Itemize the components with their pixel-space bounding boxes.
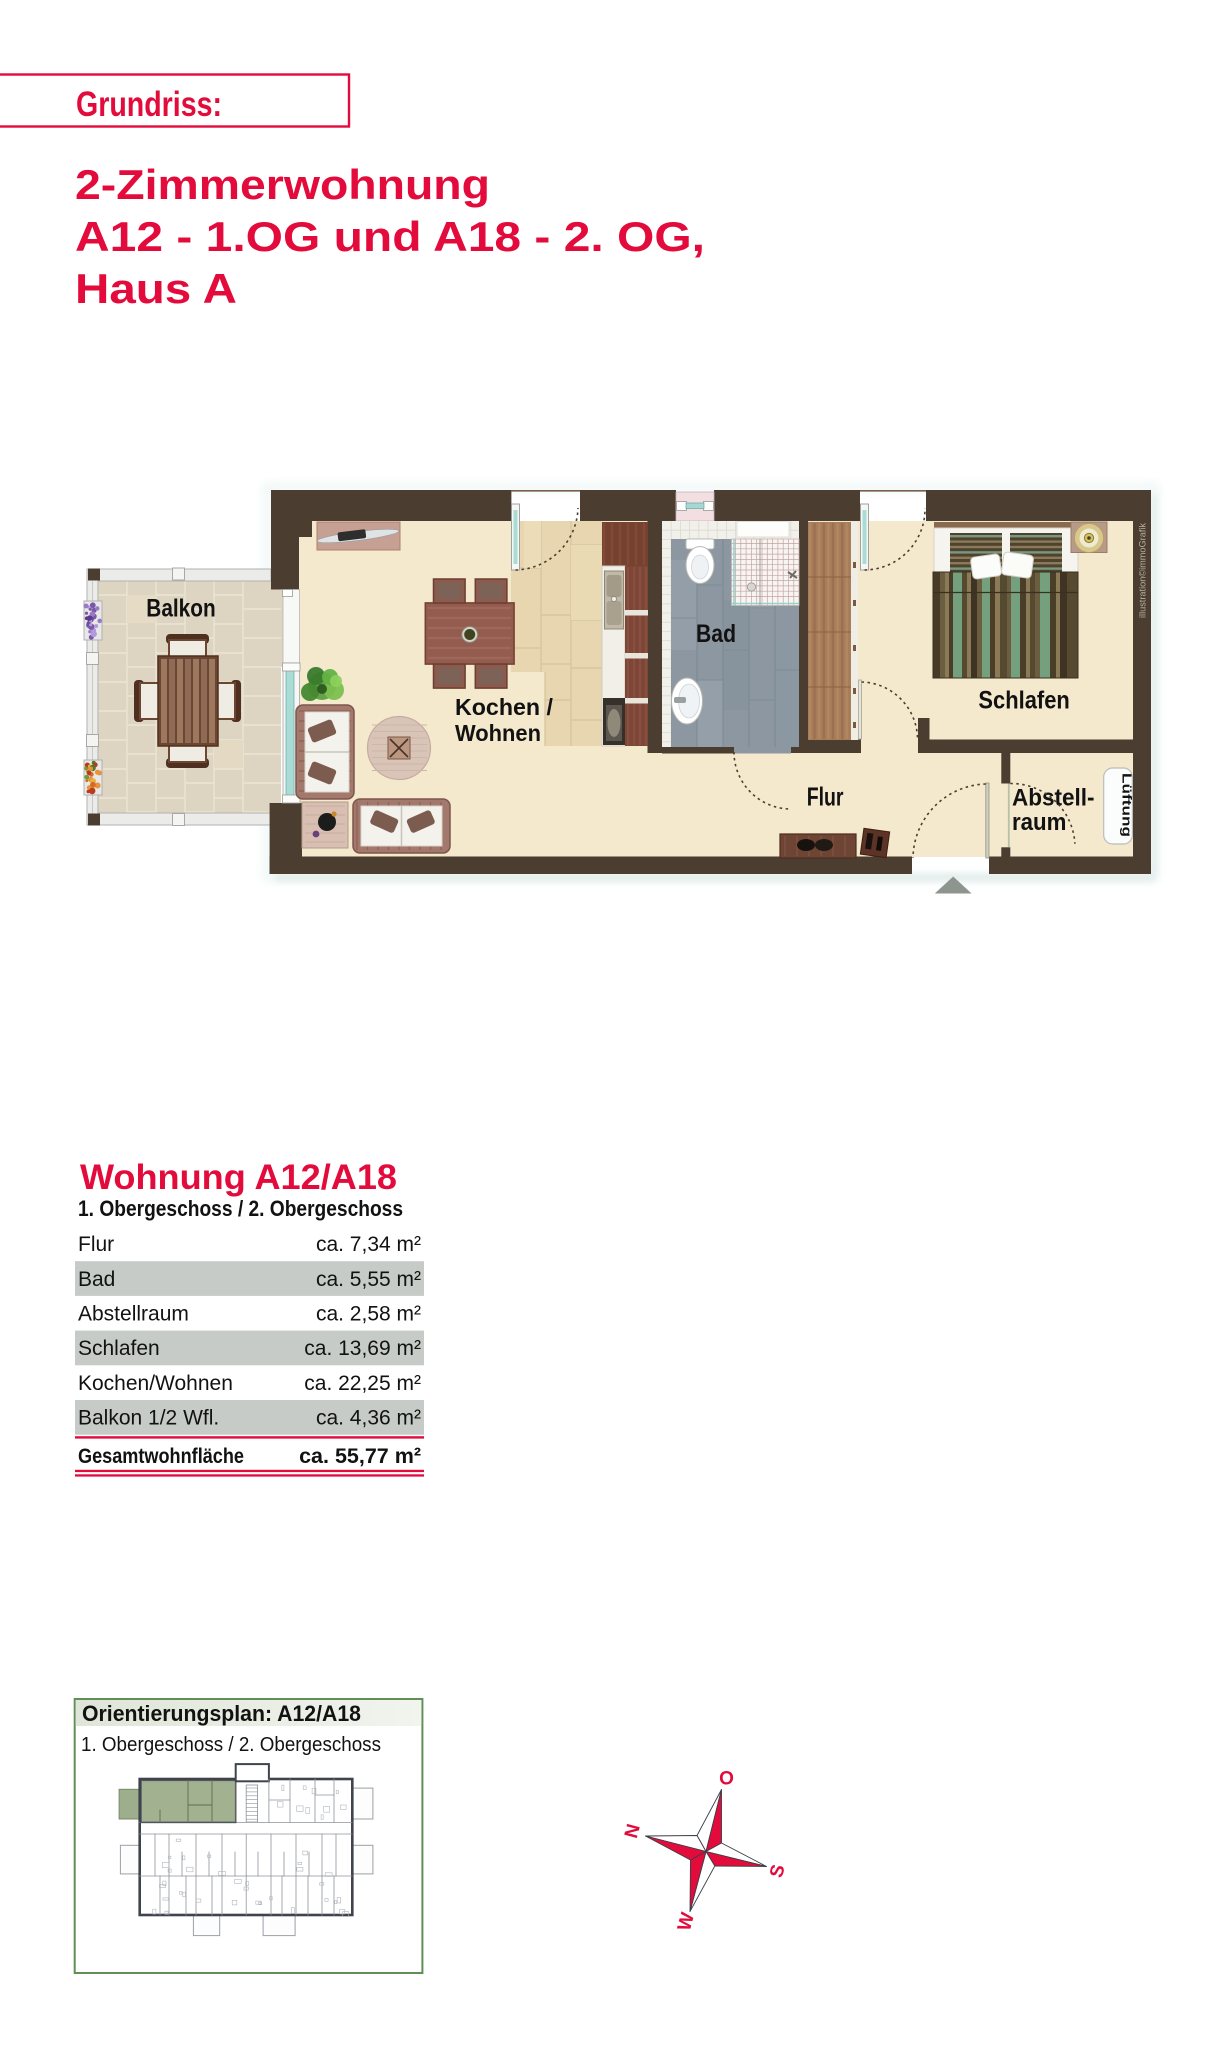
svg-text:ca. 5,55 m²: ca. 5,55 m² bbox=[316, 1268, 421, 1291]
svg-text:Wohnen: Wohnen bbox=[455, 720, 541, 746]
svg-text:Haus A: Haus A bbox=[75, 265, 237, 312]
svg-text:ca. 4,36 m²: ca. 4,36 m² bbox=[316, 1407, 421, 1430]
svg-text:O: O bbox=[719, 1769, 734, 1790]
svg-text:Flur: Flur bbox=[78, 1233, 114, 1256]
svg-text:Kochen /: Kochen / bbox=[455, 694, 554, 720]
svg-text:raum: raum bbox=[1012, 809, 1066, 836]
svg-text:Abstell-: Abstell- bbox=[1012, 785, 1095, 812]
svg-text:ca. 2,58 m²: ca. 2,58 m² bbox=[316, 1303, 421, 1326]
svg-text:A12 - 1.OG und A18 - 2. OG,: A12 - 1.OG und A18 - 2. OG, bbox=[75, 213, 705, 260]
svg-text:Flur: Flur bbox=[807, 782, 844, 812]
svg-text:illustration©immoGrafik: illustration©immoGrafik bbox=[1138, 523, 1149, 618]
svg-text:ca. 13,69 m²: ca. 13,69 m² bbox=[304, 1337, 421, 1360]
svg-text:ca. 55,77 m²: ca. 55,77 m² bbox=[299, 1444, 421, 1468]
svg-text:2-Zimmerwohnung: 2-Zimmerwohnung bbox=[75, 161, 490, 208]
svg-text:Wohnung A12/A18: Wohnung A12/A18 bbox=[80, 1158, 397, 1197]
svg-text:Lüftung: Lüftung bbox=[1120, 773, 1135, 837]
svg-text:Abstellraum: Abstellraum bbox=[78, 1303, 189, 1326]
svg-text:Balkon 1/2 Wfl.: Balkon 1/2 Wfl. bbox=[78, 1407, 219, 1430]
svg-text:Bad: Bad bbox=[696, 620, 736, 648]
svg-text:Schlafen: Schlafen bbox=[978, 687, 1069, 715]
svg-text:Balkon: Balkon bbox=[146, 595, 215, 623]
svg-text:Kochen/Wohnen: Kochen/Wohnen bbox=[78, 1372, 233, 1395]
svg-text:ca. 22,25 m²: ca. 22,25 m² bbox=[304, 1372, 421, 1395]
svg-text:Grundriss:: Grundriss: bbox=[76, 85, 222, 124]
svg-text:Bad: Bad bbox=[78, 1268, 115, 1291]
svg-text:Gesamtwohnfläche: Gesamtwohnfläche bbox=[78, 1444, 244, 1468]
svg-text:Orientierungsplan: A12/A18: Orientierungsplan: A12/A18 bbox=[82, 1701, 361, 1726]
svg-text:1. Obergeschoss / 2. Obergesch: 1. Obergeschoss / 2. Obergeschoss bbox=[81, 1734, 381, 1756]
svg-text:ca. 7,34 m²: ca. 7,34 m² bbox=[316, 1233, 421, 1256]
svg-text:1. Obergeschoss / 2. Obergesch: 1. Obergeschoss / 2. Obergeschoss bbox=[78, 1196, 403, 1221]
svg-text:Schlafen: Schlafen bbox=[78, 1337, 160, 1360]
